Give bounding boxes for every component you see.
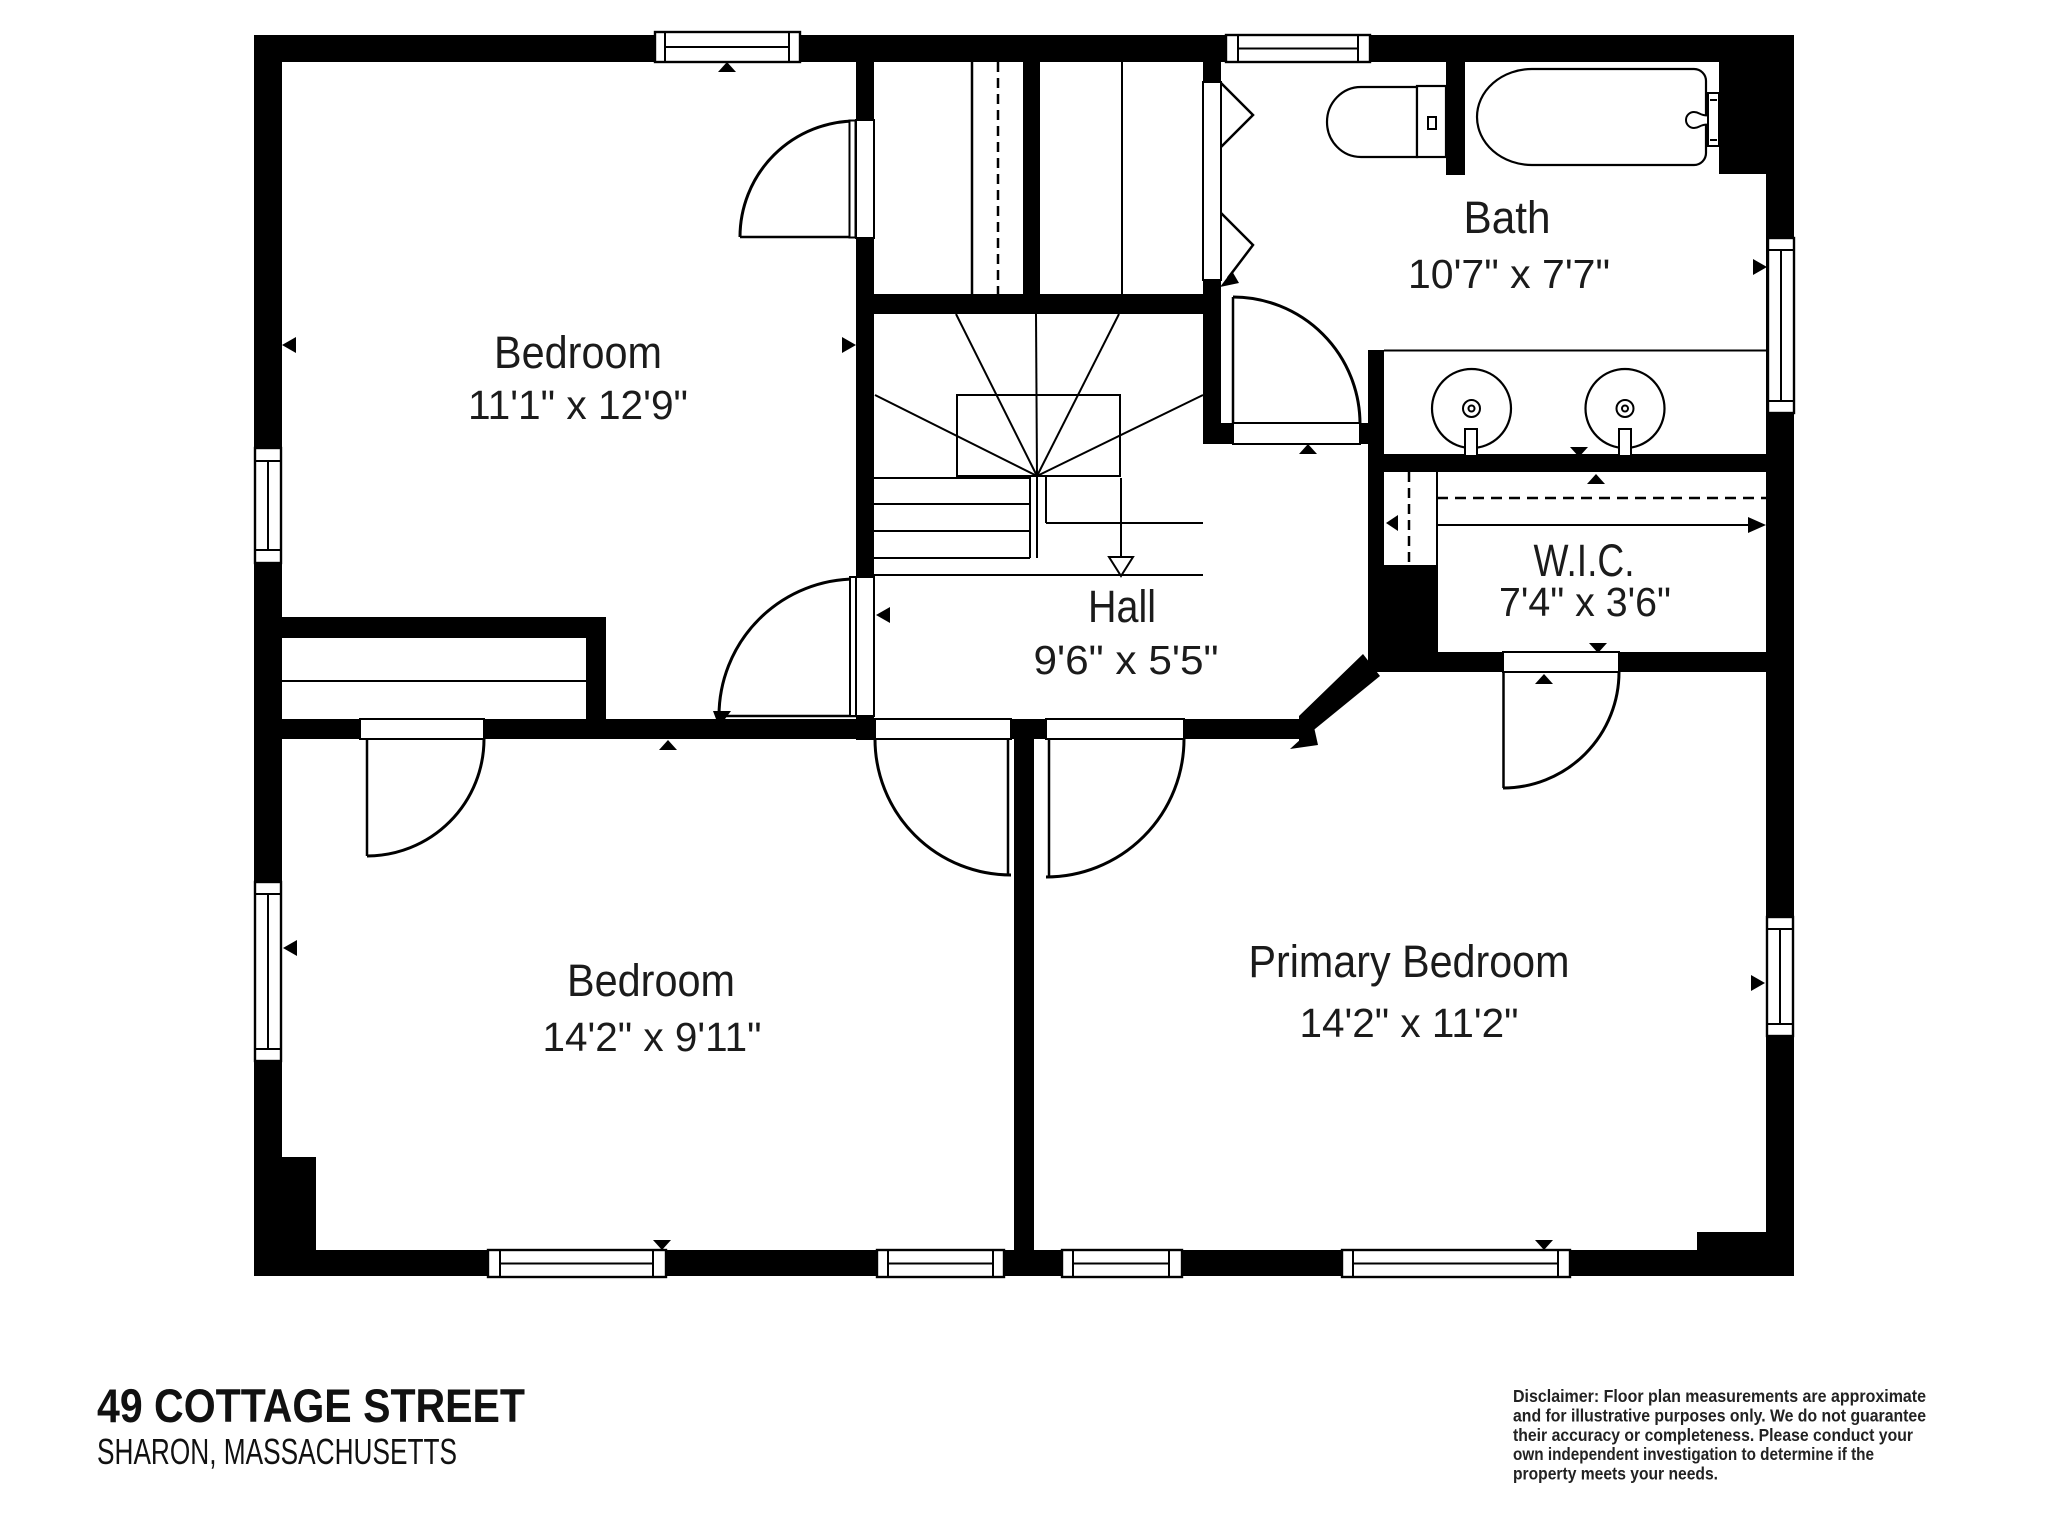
svg-text:Primary Bedroom: Primary Bedroom xyxy=(1249,936,1570,987)
svg-text:SHARON, MASSACHUSETTS: SHARON, MASSACHUSETTS xyxy=(97,1431,457,1472)
svg-text:and for illustrative purposes: and for illustrative purposes only. We d… xyxy=(1513,1405,1926,1425)
svg-text:14'2" x 11'2": 14'2" x 11'2" xyxy=(1300,1000,1519,1046)
svg-text:Disclaimer: Floor plan measure: Disclaimer: Floor plan measurements are … xyxy=(1513,1386,1926,1406)
svg-text:10'7" x 7'7": 10'7" x 7'7" xyxy=(1408,251,1610,297)
svg-text:14'2" x 9'11": 14'2" x 9'11" xyxy=(543,1014,762,1060)
svg-text:49 COTTAGE STREET: 49 COTTAGE STREET xyxy=(97,1379,525,1432)
svg-text:their accuracy or completeness: their accuracy or completeness. Please c… xyxy=(1513,1425,1913,1445)
svg-text:property meets your needs.: property meets your needs. xyxy=(1513,1464,1718,1484)
svg-text:11'1" x 12'9": 11'1" x 12'9" xyxy=(468,382,688,428)
svg-text:own independent investigation: own independent investigation to determi… xyxy=(1513,1444,1874,1464)
svg-text:7'4" x 3'6": 7'4" x 3'6" xyxy=(1499,579,1671,625)
svg-text:Bath: Bath xyxy=(1464,192,1551,243)
svg-text:Bedroom: Bedroom xyxy=(494,327,662,378)
svg-text:Bedroom: Bedroom xyxy=(567,955,735,1006)
svg-text:Hall: Hall xyxy=(1088,581,1156,632)
svg-text:9'6" x 5'5": 9'6" x 5'5" xyxy=(1034,637,1219,683)
